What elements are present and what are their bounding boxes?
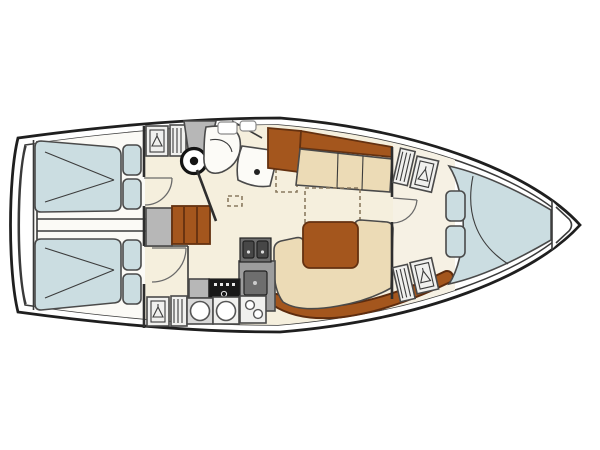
washer-drum-icon [191,302,210,321]
deck-hatch [240,121,256,131]
floor-plan-canvas [0,0,600,450]
berth-cushion [123,240,141,270]
sink-drain-icon [247,250,250,253]
bow-area [552,200,577,250]
berth-cushion [123,145,141,175]
burner-icon [254,310,263,319]
icebox-drain-icon [253,281,257,285]
galley-cabinet [189,279,209,298]
berth-cushion [123,274,141,304]
aft-lockers-port [147,296,187,326]
aft-cabin-port [35,239,141,310]
engine-box [146,208,172,246]
mast-post-center [190,157,198,165]
boat-floor-plan [0,0,600,450]
berth-cushion [123,179,141,209]
deck-hatch [218,122,237,134]
sink-drain-icon [254,169,260,175]
burner-icon [246,301,255,310]
shelf-locker [170,125,186,156]
aft-lockers-starboard [146,125,186,156]
burner-box [240,296,266,323]
sink-basin [257,241,268,258]
v-berth [449,166,551,284]
sink-drain-icon [261,250,264,253]
wood-cabinet [268,128,301,172]
companionway-steps [172,206,210,244]
round-sink-icon [217,302,236,321]
aft-berth-port [35,239,121,310]
berth-cushion [446,191,465,221]
salon-table [303,222,358,268]
shelf-locker [171,296,187,326]
sink-basin [243,241,254,258]
berth-cushion [446,226,465,257]
companionway [146,206,210,246]
